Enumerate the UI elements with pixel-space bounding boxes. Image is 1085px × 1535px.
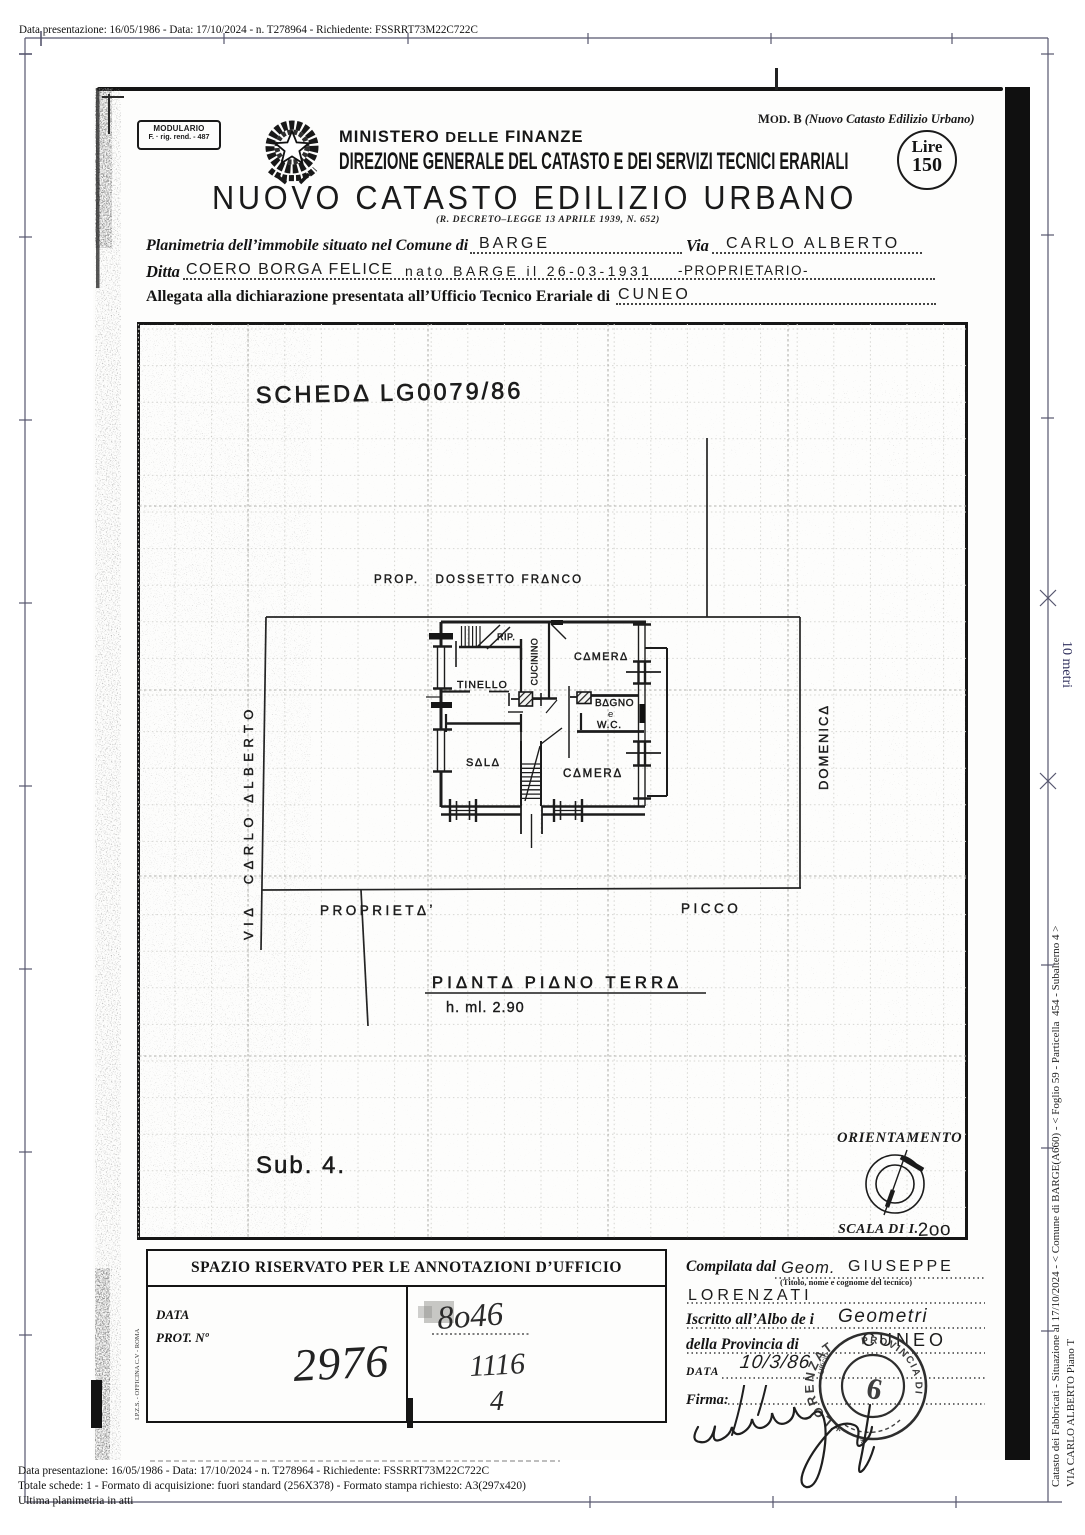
svg-text:TINELLO: TINELLO: [457, 679, 508, 691]
svg-text:h. ml. 2.90: h. ml. 2.90: [446, 1000, 525, 1016]
svg-text:CUCININO: CUCININO: [530, 638, 540, 686]
svg-text:PROP. DOSSETTO FRΔNCO: PROP. DOSSETTO FRΔNCO: [374, 574, 583, 586]
svg-text:CΔMERΔ: CΔMERΔ: [574, 651, 629, 663]
svg-text:Sub. 4.: Sub. 4.: [256, 1152, 346, 1179]
svg-text:BΔGNO: BΔGNO: [595, 698, 634, 709]
svg-text:2oo: 2oo: [917, 1219, 951, 1240]
svg-text:VIΔ CΔRLO ΔLBERTO: VIΔ CΔRLO ΔLBERTO: [241, 704, 256, 940]
svg-text:DOMENICΔ: DOMENICΔ: [816, 704, 831, 790]
svg-text:PIΔNTΔ PIΔNO TERRΔ: PIΔNTΔ PIΔNO TERRΔ: [432, 974, 683, 992]
svg-text:4: 4: [490, 1386, 504, 1417]
svg-text:1116: 1116: [469, 1347, 526, 1383]
svg-text:SCHEDΔ LG0079/86: SCHEDΔ LG0079/86: [256, 377, 524, 408]
svg-text:PICCO: PICCO: [681, 901, 741, 916]
svg-text:W.C.: W.C.: [597, 720, 622, 731]
svg-text:CΔMERΔ: CΔMERΔ: [563, 768, 623, 780]
svg-text:2976: 2976: [292, 1335, 391, 1391]
svg-text:SΔLΔ: SΔLΔ: [466, 757, 501, 769]
svg-text:PROPRIETΔʼ: PROPRIETΔʼ: [320, 903, 436, 918]
svg-text:ORIENTAMENTO: ORIENTAMENTO: [837, 1130, 962, 1146]
svg-text:RIP.: RIP.: [497, 632, 515, 642]
svg-text:8o46: 8o46: [436, 1296, 505, 1337]
svg-text:e: e: [608, 709, 613, 720]
svg-text:SCALA DI I.: SCALA DI I.: [838, 1222, 919, 1237]
